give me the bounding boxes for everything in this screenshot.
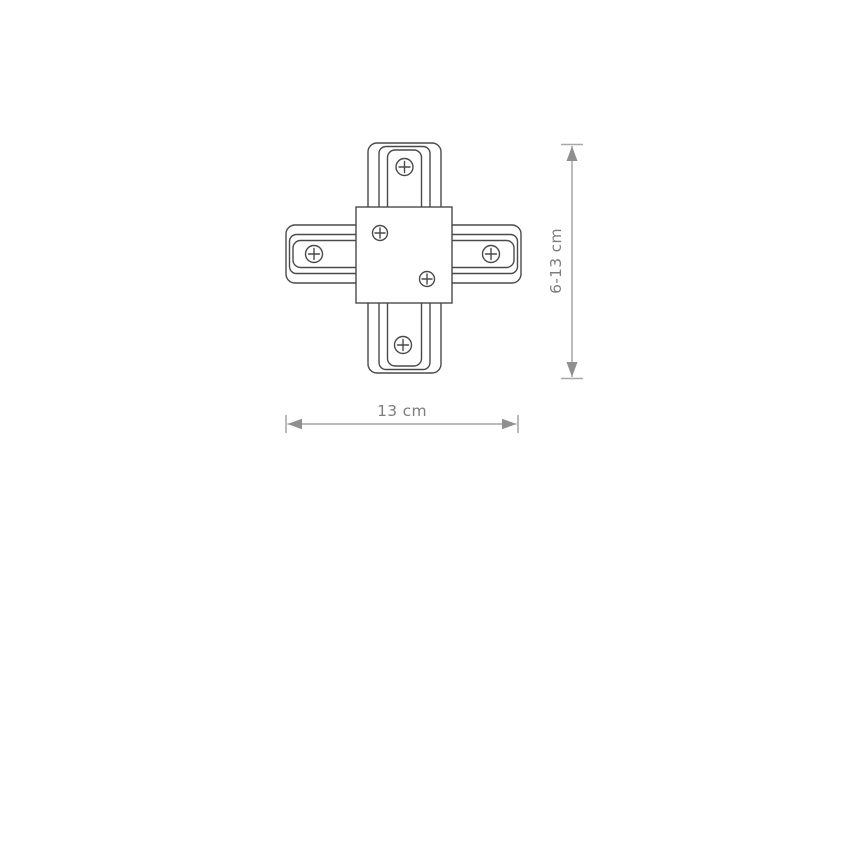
screw-icon: [373, 226, 388, 241]
width-dimension: 13 cm: [286, 402, 518, 433]
x-connector-diagram: 6-13 cm 13 cm: [0, 0, 868, 868]
arrow-down-icon: [567, 362, 578, 377]
screw-icon: [483, 246, 500, 263]
arrow-right-icon: [502, 419, 517, 429]
screw-icon: [396, 159, 413, 176]
screw-icon: [306, 246, 323, 263]
arrow-left-icon: [288, 419, 303, 429]
screw-icon: [420, 272, 435, 287]
mounting-plate: [356, 207, 452, 303]
width-dimension-label: 13 cm: [377, 402, 427, 420]
technical-diagram-page: 6-13 cm 13 cm: [0, 0, 868, 868]
height-dimension-label: 6-13 cm: [547, 228, 565, 294]
height-dimension: 6-13 cm: [547, 145, 583, 379]
arrow-up-icon: [567, 146, 578, 161]
screw-icon: [395, 337, 412, 354]
